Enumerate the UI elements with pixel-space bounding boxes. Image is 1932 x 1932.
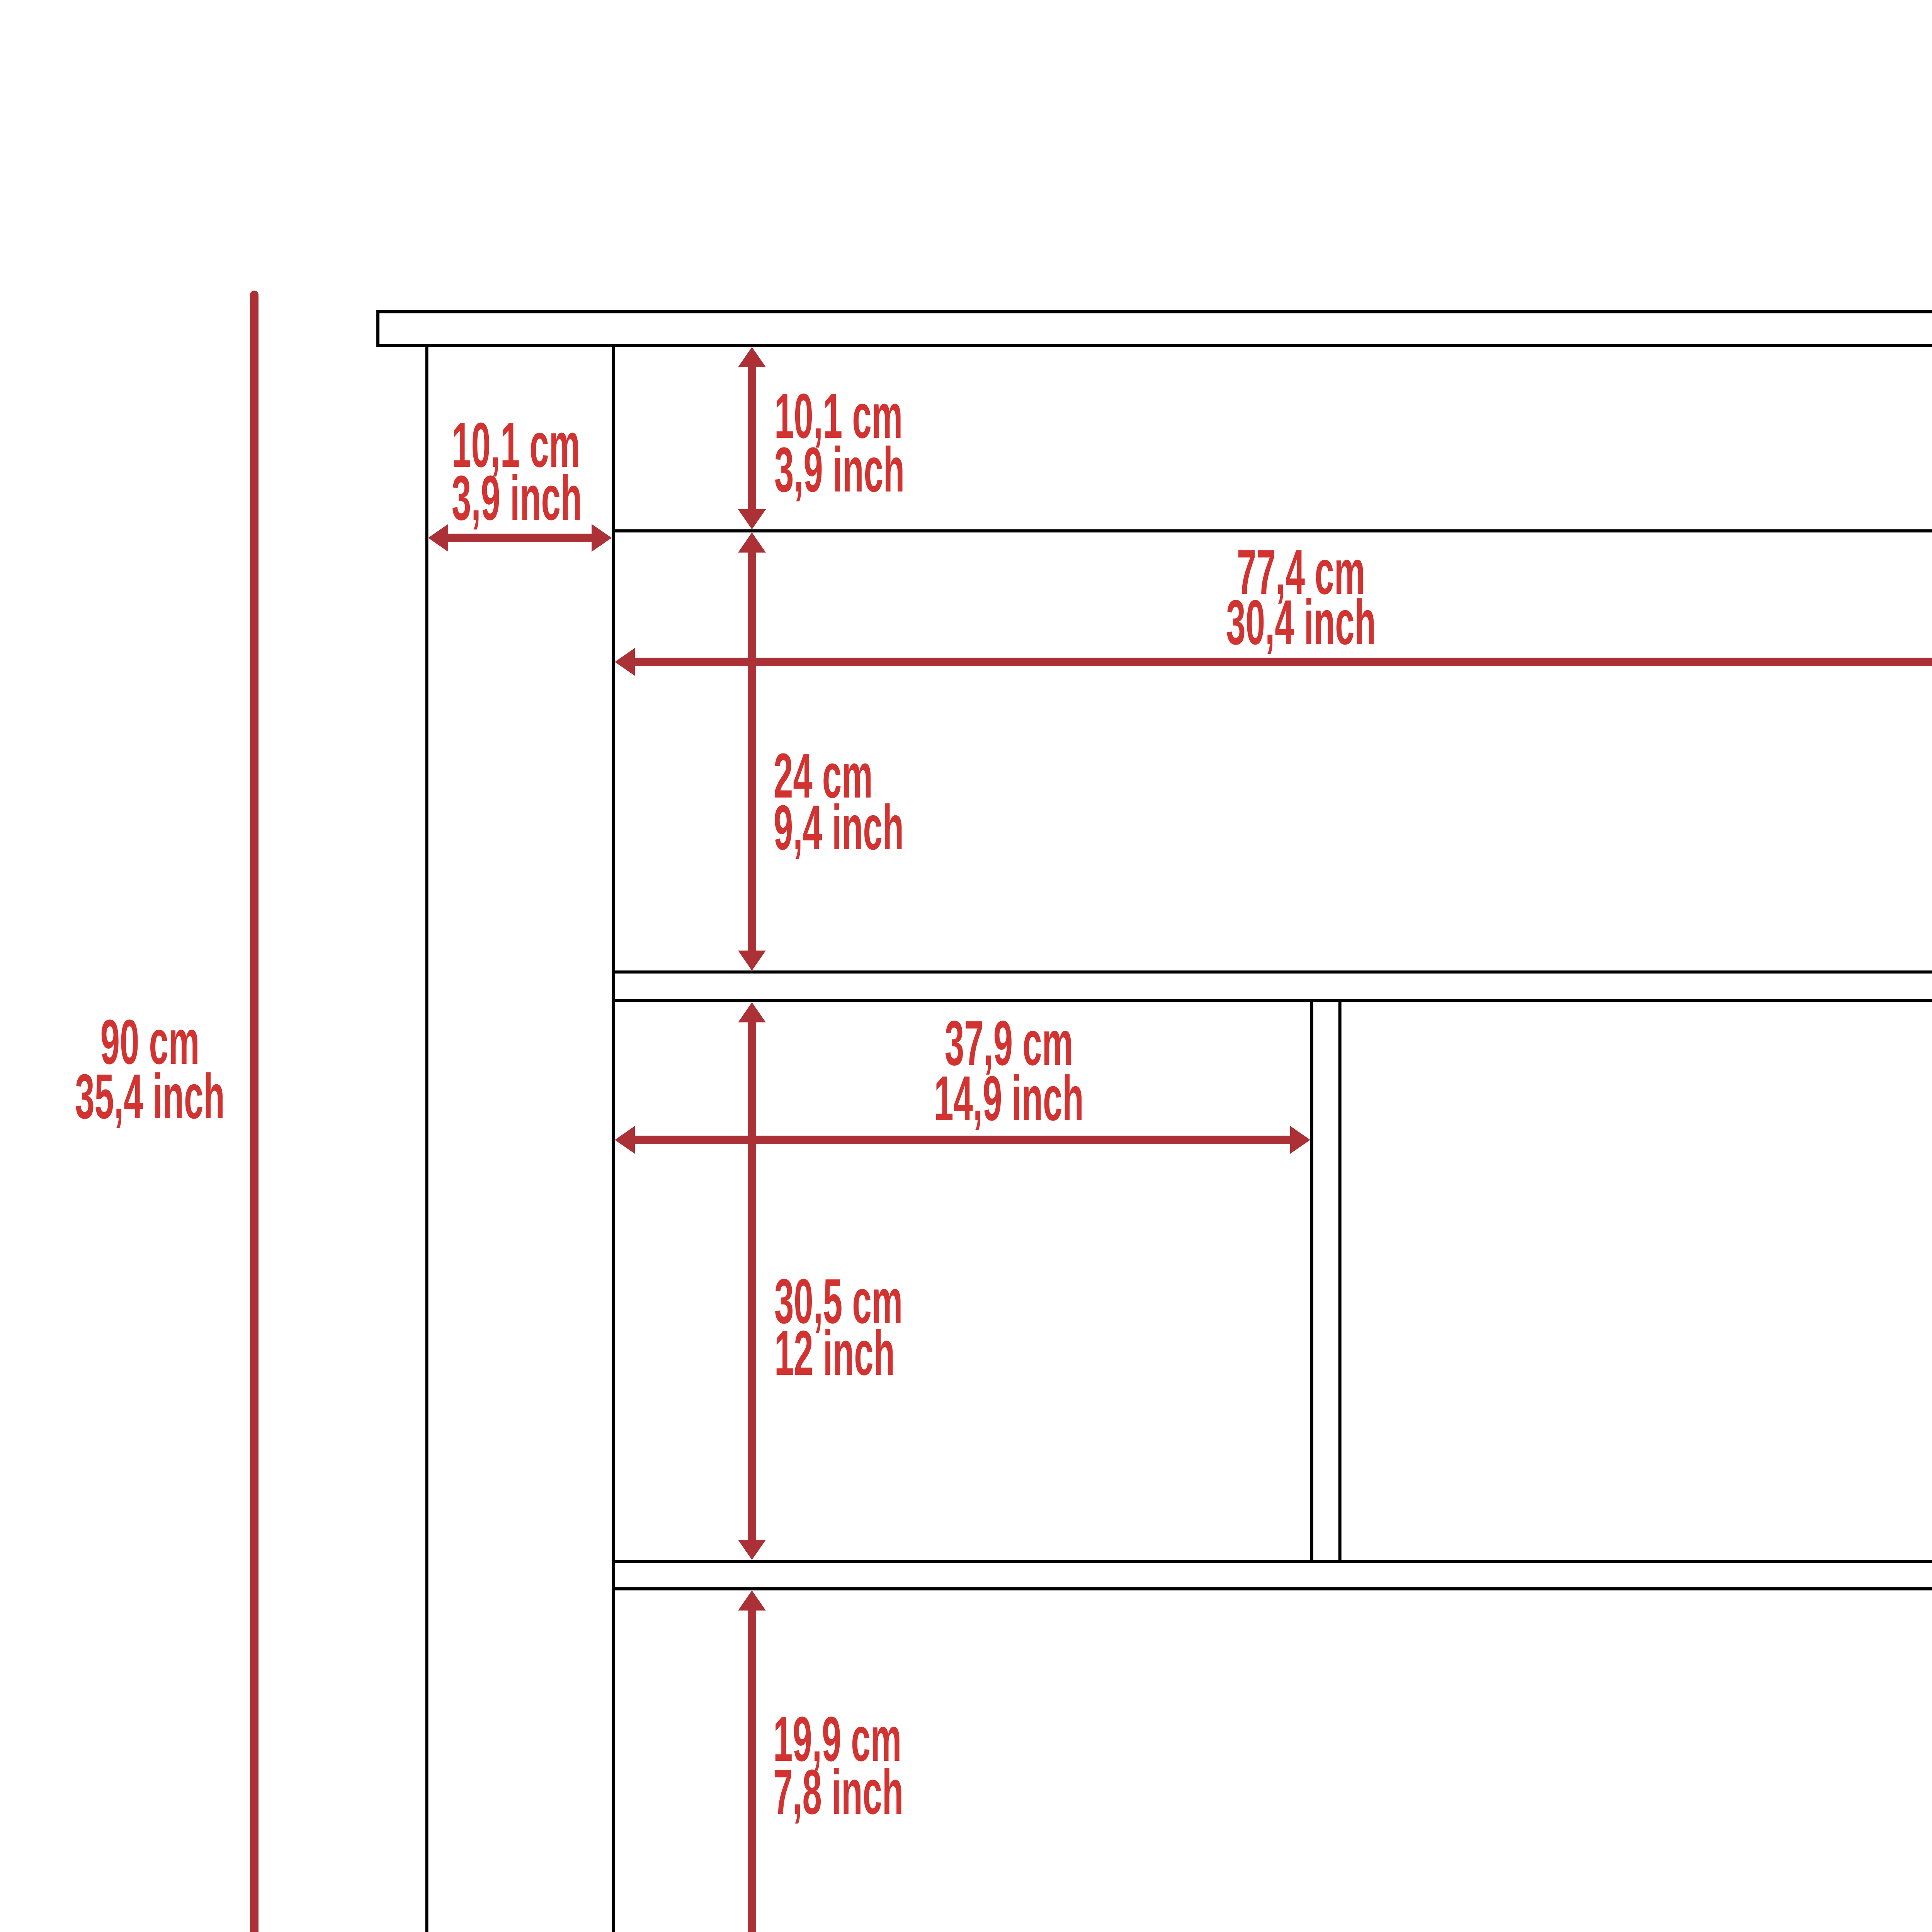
svg-text:12 inch: 12 inch bbox=[774, 1318, 895, 1389]
svg-text:35,4 inch: 35,4 inch bbox=[75, 1061, 224, 1132]
svg-text:3,9 inch: 3,9 inch bbox=[452, 463, 582, 534]
svg-text:14,9 inch: 14,9 inch bbox=[934, 1063, 1083, 1134]
svg-text:7,8 inch: 7,8 inch bbox=[773, 1757, 903, 1828]
svg-text:9,4 inch: 9,4 inch bbox=[774, 793, 904, 863]
svg-text:3,9 inch: 3,9 inch bbox=[774, 435, 905, 505]
svg-text:30,4 inch: 30,4 inch bbox=[1226, 587, 1376, 658]
